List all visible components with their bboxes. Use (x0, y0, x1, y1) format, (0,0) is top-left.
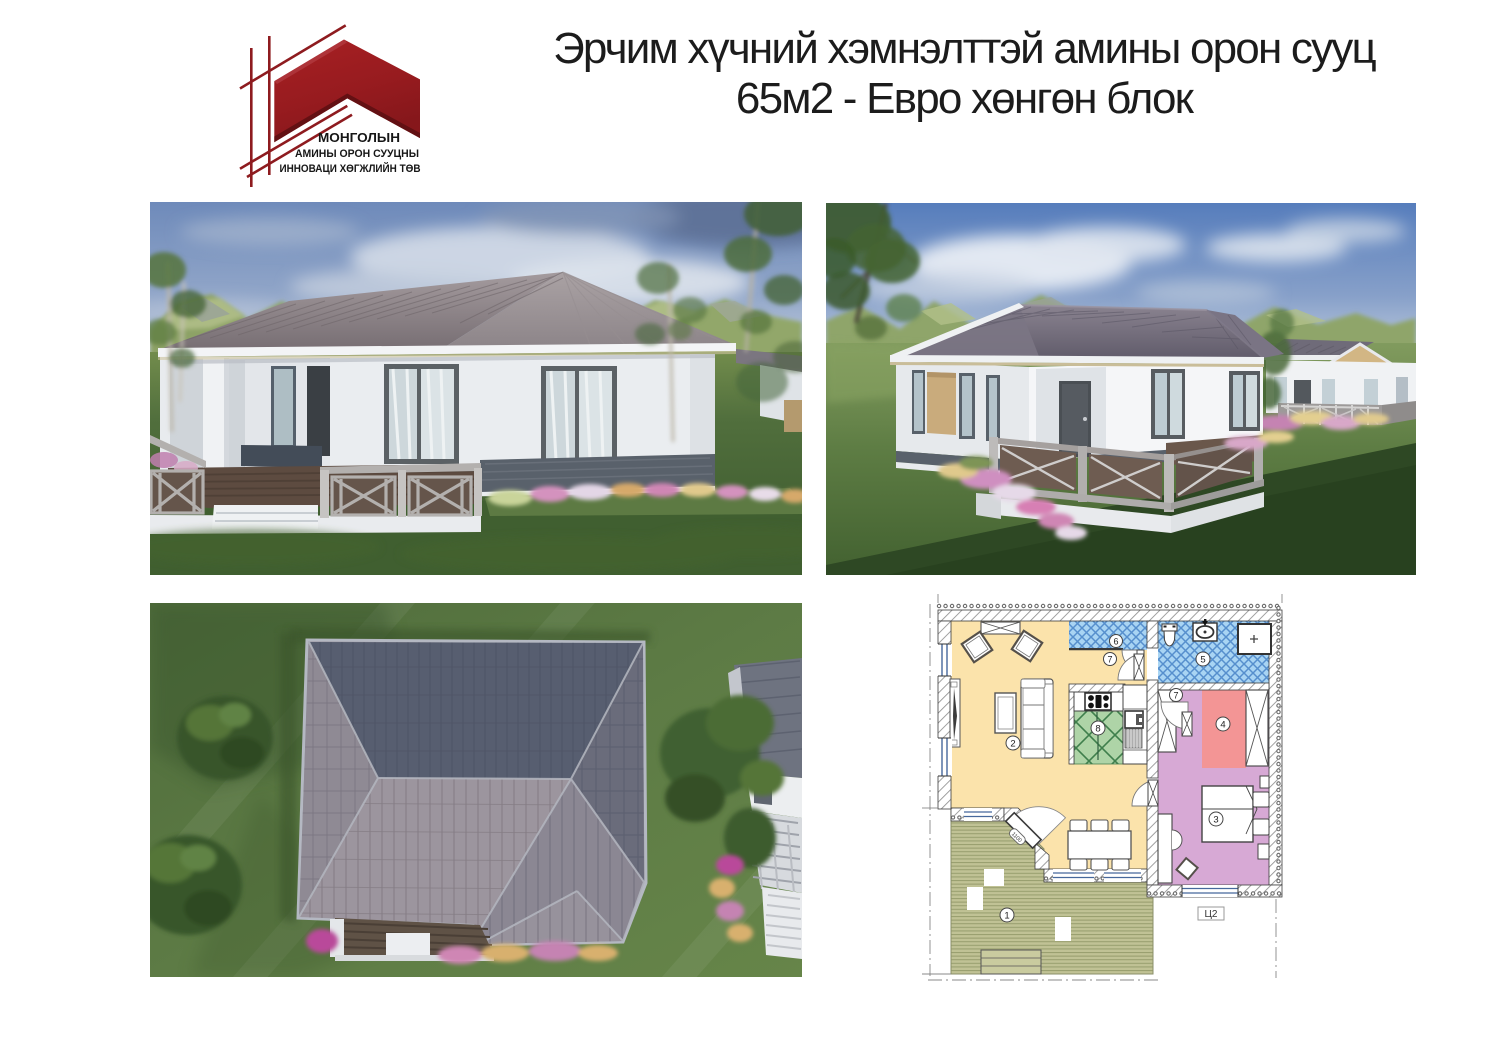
svg-text:7: 7 (1107, 655, 1112, 665)
svg-text:МОНГОЛЫН: МОНГОЛЫН (318, 131, 400, 145)
svg-text:2: 2 (1010, 739, 1015, 750)
svg-text:Ц2: Ц2 (1205, 909, 1218, 920)
svg-text:1: 1 (1004, 911, 1009, 922)
svg-text:ИННОВАЦИ ХӨГЖЛИЙН ТӨВ: ИННОВАЦИ ХӨГЖЛИЙН ТӨВ (280, 162, 421, 175)
svg-text:6: 6 (1113, 637, 1118, 647)
svg-text:8: 8 (1095, 724, 1100, 735)
svg-text:3: 3 (1213, 815, 1218, 826)
svg-text:7: 7 (1173, 691, 1178, 701)
svg-text:4: 4 (1220, 720, 1225, 731)
svg-text:5: 5 (1200, 655, 1205, 666)
svg-text:АМИНЫ ОРОН СУУЦНЫ: АМИНЫ ОРОН СУУЦНЫ (295, 148, 419, 160)
